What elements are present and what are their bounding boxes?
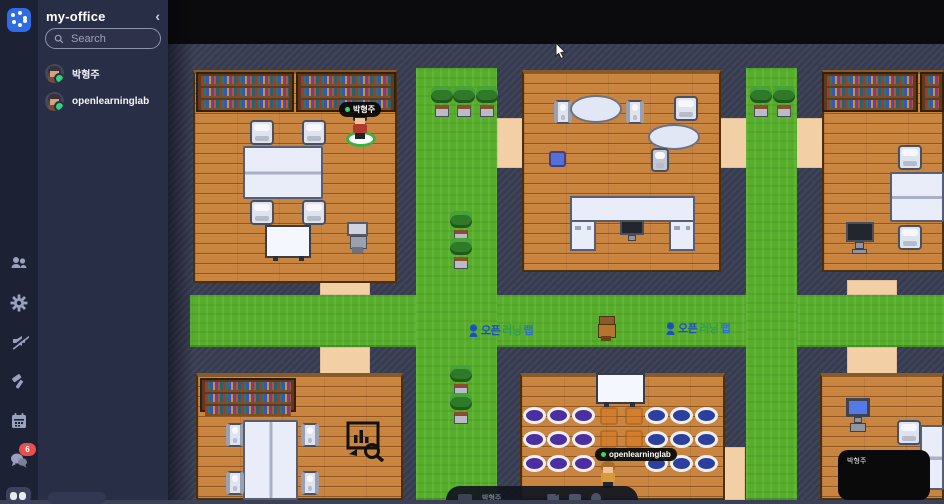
member-row[interactable]: 박형주	[45, 61, 161, 85]
panel-footer-button[interactable]	[48, 492, 106, 504]
potted-plant	[475, 86, 499, 117]
seat-cushion	[523, 407, 546, 424]
beanbag-cube	[549, 151, 566, 167]
announce-muted-icon[interactable]	[9, 332, 29, 352]
ghost-chair	[625, 430, 643, 448]
bookshelf	[200, 378, 296, 412]
calendar-icon[interactable]	[9, 411, 29, 431]
grass-walkway	[190, 295, 944, 347]
person-logo-icon	[665, 322, 676, 335]
long-table	[243, 420, 298, 500]
reception-desk	[570, 220, 596, 251]
armchair	[301, 471, 319, 495]
seat-cushion	[695, 455, 718, 472]
space-title: my-office	[46, 9, 106, 24]
seat-cushion	[670, 431, 693, 448]
bookshelf	[920, 72, 944, 112]
projector-screen	[596, 373, 645, 404]
analytics-logo	[345, 420, 385, 462]
participants-icon[interactable]	[9, 253, 29, 273]
openlearninglab-sign: 오픈러닝랩	[468, 322, 533, 338]
build-hammer-icon[interactable]	[9, 371, 29, 391]
game-map[interactable]: 박형주	[168, 0, 944, 500]
kiosk	[347, 222, 368, 253]
player-avatar[interactable]	[600, 461, 616, 488]
tv-monitor	[846, 222, 874, 242]
seat-cushion	[523, 431, 546, 448]
seat-cushion	[547, 431, 570, 448]
seat-cushion	[547, 455, 570, 472]
path	[497, 118, 524, 168]
member-name: 박형주	[72, 66, 100, 81]
monitor-stand	[628, 235, 636, 241]
seat-cushion	[572, 431, 595, 448]
seat-cushion	[523, 455, 546, 472]
toolbar-user-label: 박형주	[482, 493, 501, 500]
seat-cushion	[670, 407, 693, 424]
chair	[897, 420, 921, 445]
potted-plant	[449, 393, 473, 424]
chat-icon[interactable]: 6	[9, 450, 29, 470]
conference-table	[243, 146, 323, 199]
self-video-chip[interactable]	[458, 494, 472, 501]
oval-table	[648, 124, 700, 150]
armchair	[651, 148, 669, 172]
online-dot	[54, 101, 64, 111]
oval-table	[570, 95, 622, 123]
path	[795, 118, 824, 168]
ghost-chair	[600, 430, 618, 448]
avatar	[45, 92, 64, 111]
potted-plant	[749, 86, 773, 117]
seat-cushion	[645, 407, 668, 424]
search-icon	[54, 34, 64, 44]
icon-rail: 6	[0, 0, 38, 500]
chair	[898, 145, 922, 170]
potted-plant	[430, 86, 454, 117]
grass-walkway	[416, 68, 497, 500]
path	[847, 280, 897, 295]
bookshelf	[196, 72, 294, 112]
chair	[674, 96, 698, 121]
potted-plant	[449, 365, 473, 396]
map-edge-shadow	[168, 0, 194, 500]
emote-icon[interactable]	[591, 493, 601, 500]
desk-monitor	[620, 220, 644, 235]
seat-cushion	[645, 431, 668, 448]
more-icon[interactable]	[6, 487, 31, 503]
reception-desk	[669, 220, 695, 251]
map-top-bar	[168, 0, 944, 44]
seat-cushion	[695, 407, 718, 424]
chair	[250, 120, 274, 145]
whiteboard	[265, 225, 311, 258]
avatar	[45, 64, 64, 83]
armchair	[301, 423, 319, 447]
openlearninglab-sign: 오픈러닝랩	[665, 320, 730, 336]
potted-plant	[449, 238, 473, 269]
search-input[interactable]	[69, 32, 153, 46]
player-nametag: 박형주	[339, 102, 381, 117]
monitor	[846, 398, 870, 417]
reception-desk	[570, 196, 695, 222]
ghost-chair	[600, 407, 618, 425]
person-logo-icon	[468, 324, 479, 337]
camera-icon[interactable]	[547, 494, 559, 501]
seat-cushion	[572, 455, 595, 472]
monitor-base	[852, 249, 867, 254]
app-logo-icon[interactable]	[7, 8, 31, 32]
bottom-toolbar[interactable]: 박형주	[446, 486, 638, 500]
sidebar: my-office ‹ 박형주 openlearninglab	[38, 0, 168, 500]
player-nametag: openlearninglab	[595, 448, 677, 461]
mouse-cursor	[554, 42, 568, 60]
screenshare-icon[interactable]	[569, 494, 581, 501]
table	[890, 172, 944, 222]
chair	[302, 200, 326, 225]
ghost-chair	[625, 407, 643, 425]
chat-badge: 6	[19, 443, 36, 456]
armchair	[626, 100, 644, 124]
monitor-stand	[855, 242, 864, 249]
member-name: openlearninglab	[72, 96, 149, 107]
seat-cushion	[695, 431, 718, 448]
chair	[302, 120, 326, 145]
grass-walkway	[746, 68, 797, 500]
collapse-sidebar-icon[interactable]: ‹	[155, 9, 160, 23]
chair	[250, 200, 274, 225]
online-dot	[601, 452, 606, 457]
bookshelf	[822, 72, 918, 112]
wooden-chair	[598, 316, 614, 341]
potted-plant	[452, 86, 476, 117]
chair	[898, 225, 922, 250]
armchair	[226, 423, 244, 447]
settings-gear-icon[interactable]	[9, 293, 29, 313]
online-dot	[345, 107, 350, 112]
seat-cushion	[547, 407, 570, 424]
online-dot	[54, 73, 64, 83]
potted-plant	[772, 86, 796, 117]
path	[718, 118, 748, 168]
monitor-base	[850, 423, 866, 432]
path	[723, 447, 745, 500]
video-tile[interactable]: 박형주	[838, 450, 930, 500]
armchair	[226, 471, 244, 495]
member-row[interactable]: openlearninglab	[45, 89, 161, 113]
virtual-office-app: { "app": {"title": "my-office", "collaps…	[0, 0, 944, 500]
video-tile-name: 박형주	[847, 456, 866, 466]
search-box[interactable]	[45, 28, 161, 49]
armchair	[554, 100, 572, 124]
seat-cushion	[572, 407, 595, 424]
